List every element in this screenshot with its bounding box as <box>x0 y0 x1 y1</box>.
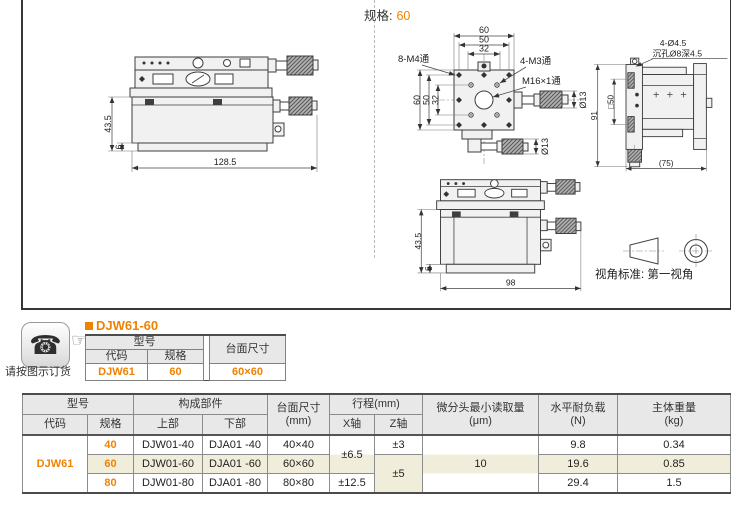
cell-spec-80: 80 <box>88 474 134 494</box>
view-standard-label: 视角标准: 第一视角 <box>595 266 693 282</box>
side-view-body <box>130 56 318 151</box>
spec-label-text: 规格: <box>364 9 392 23</box>
order-table-spec-header: 规格 <box>148 350 204 364</box>
header-z-axis: Z轴 <box>375 415 423 436</box>
projection-circles-icon <box>679 234 713 268</box>
header-weight: 主体重量 (kg) <box>618 394 731 435</box>
dim-6-front: 6 <box>423 266 433 271</box>
cell-spec-60: 60 <box>88 455 134 474</box>
cell-spec-40: 40 <box>88 435 134 455</box>
cell-micrometer: 10 <box>423 435 539 493</box>
order-table-model-header: 型号 <box>86 335 204 350</box>
spec-row-40: DJW61 40 DJW01-40 DJA01 -40 40×40 ±6.5 ±… <box>23 435 731 455</box>
cell-upper-40: DJW01-40 <box>134 435 203 455</box>
order-table-code-value: DJW61 <box>86 364 148 381</box>
cell-weight-80: 1.5 <box>618 474 731 494</box>
dim-75: (75) <box>659 159 674 168</box>
header-code: 代码 <box>23 415 88 436</box>
label-4-m3: 4-M3通 <box>520 56 552 67</box>
cell-weight-60: 0.85 <box>618 455 731 474</box>
front-view-body <box>437 180 581 273</box>
order-table-size-value: 60×60 <box>210 364 286 381</box>
dim-top-60: 60 <box>479 25 489 35</box>
cell-travel-z-40: ±3 <box>375 435 423 455</box>
order-note: 请按图示订货 <box>5 363 71 379</box>
cell-upper-80: DJW01-80 <box>134 474 203 494</box>
label-m16: M16×1通 <box>522 76 561 87</box>
header-load: 水平耐负载 (N) <box>539 394 618 435</box>
label-4-dia4-5: 4-Ø4.5 <box>660 38 687 48</box>
dim-dia13-bottom: Ø13 <box>540 138 550 155</box>
right-view-body <box>626 58 712 169</box>
cell-weight-40: 0.34 <box>618 435 731 455</box>
cell-size-60: 60×60 <box>268 455 330 474</box>
product-title: DJW61-60 <box>85 318 158 333</box>
cell-size-40: 40×40 <box>268 435 330 455</box>
spec-row-60: 60 DJW01-60 DJA01 -60 60×60 ±5 19.6 0.85 <box>23 455 731 474</box>
order-phone-button: ☎ <box>21 322 70 368</box>
header-load-text: 水平耐负载 <box>539 402 617 415</box>
label-8-m4: 8-M4通 <box>398 54 430 65</box>
dim-left-32: 32 <box>431 95 441 105</box>
dim-43-5: 43.5 <box>103 115 113 133</box>
cell-lower-40: DJA01 -40 <box>203 435 268 455</box>
cell-travel-x-40-60: ±6.5 <box>330 435 375 474</box>
cell-load-40: 9.8 <box>539 435 618 455</box>
order-table-size-header: 台面尺寸 <box>210 335 286 364</box>
cell-load-80: 29.4 <box>539 474 618 494</box>
order-table-spec-value: 60 <box>148 364 204 381</box>
dim-91: 91 <box>590 111 599 121</box>
header-size: 台面尺寸 (mm) <box>268 394 330 435</box>
header-size-text: 台面尺寸 <box>268 402 329 415</box>
drawing-right-view: 4-Ø4.5 沉孔Ø8深4.5 91 □50 (75) <box>583 38 743 175</box>
cell-travel-x-80: ±12.5 <box>330 474 375 494</box>
drawing-top-view: 60 50 32 60 50 32 8-M4通 4-M3通 M16×1通 Ø13… <box>396 20 588 180</box>
cell-code: DJW61 <box>23 435 88 493</box>
dim-128-5: 128.5 <box>214 157 237 167</box>
cell-lower-60: DJA01 -60 <box>203 455 268 474</box>
cell-load-60: 19.6 <box>539 455 618 474</box>
spec-header-row-1: 型号 构成部件 台面尺寸 (mm) 行程(mm) 微分头最小读取量 (μm) 水… <box>23 394 731 415</box>
header-lower: 下部 <box>203 415 268 436</box>
dim-top-32: 32 <box>479 44 489 54</box>
header-upper: 上部 <box>134 415 203 436</box>
dim-43-5-front: 43.5 <box>413 233 423 250</box>
header-micrometer: 微分头最小读取量 (μm) <box>423 394 539 435</box>
header-spec: 规格 <box>88 415 134 436</box>
cell-lower-80: DJA01 -80 <box>203 474 268 494</box>
product-code: DJW61-60 <box>96 318 158 333</box>
cell-upper-60: DJW01-60 <box>134 455 203 474</box>
order-table-code-header: 代码 <box>86 350 148 364</box>
header-load-unit: (N) <box>539 415 617 428</box>
frustum-icon <box>623 238 664 264</box>
header-components: 构成部件 <box>134 394 268 415</box>
header-weight-text: 主体重量 <box>618 402 730 415</box>
dim-98: 98 <box>506 277 516 287</box>
header-weight-unit: (kg) <box>618 415 730 428</box>
drawing-front-view: 43.5 6 98 <box>398 172 583 297</box>
header-x-axis: X轴 <box>330 415 375 436</box>
panel-divider <box>374 0 375 258</box>
bullet-icon <box>85 322 93 330</box>
cell-travel-z-60-80: ±5 <box>375 455 423 494</box>
header-size-unit: (mm) <box>268 415 329 428</box>
header-micrometer-text: 微分头最小读取量 <box>423 402 538 415</box>
header-model: 型号 <box>23 394 134 415</box>
header-travel: 行程(mm) <box>330 394 423 415</box>
header-micrometer-unit: (μm) <box>423 415 538 428</box>
dim-sq50: □50 <box>607 94 616 109</box>
spec-table: 型号 构成部件 台面尺寸 (mm) 行程(mm) 微分头最小读取量 (μm) 水… <box>22 393 731 494</box>
dim-left-60: 60 <box>412 95 422 105</box>
order-table: 型号 台面尺寸 代码 规格 DJW61 60 60×60 <box>85 334 286 381</box>
dim-6: 6 <box>114 144 124 149</box>
cell-size-80: 80×80 <box>268 474 330 494</box>
label-counterbore: 沉孔Ø8深4.5 <box>652 48 702 58</box>
drawing-side-view: 43.5 6 128.5 <box>95 30 320 182</box>
top-view-body <box>438 54 584 164</box>
phone-icon: ☎ <box>29 330 61 361</box>
